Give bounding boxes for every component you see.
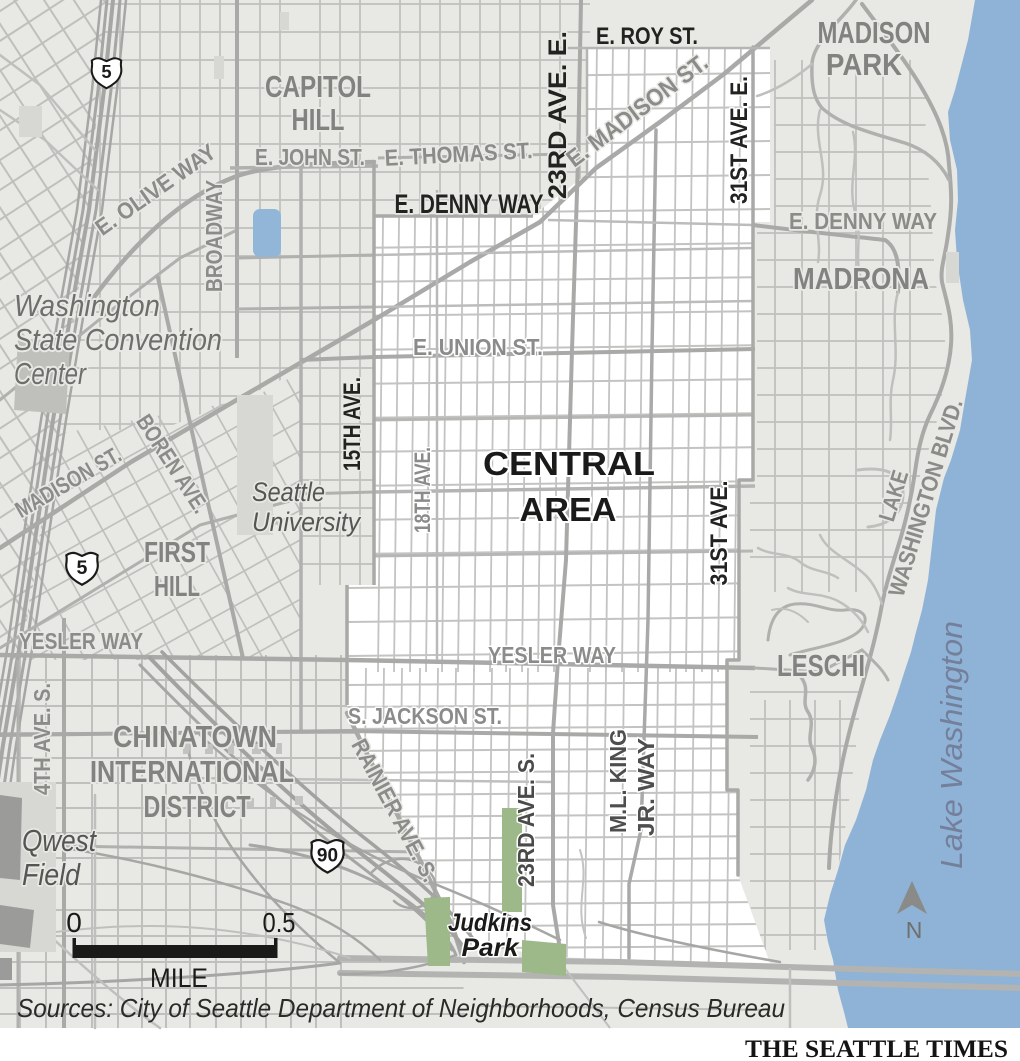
- svg-text:HILL: HILL: [154, 571, 200, 603]
- svg-text:FIRST: FIRST: [144, 537, 210, 569]
- svg-text:0.5: 0.5: [263, 907, 296, 938]
- svg-text:LESCHI: LESCHI: [777, 648, 865, 683]
- svg-text:Center: Center: [14, 356, 87, 391]
- svg-text:E. ROY ST.: E. ROY ST.: [596, 23, 698, 50]
- svg-text:MADISON: MADISON: [818, 15, 931, 50]
- svg-text:E. DENNY WAY: E. DENNY WAY: [395, 189, 544, 219]
- svg-text:THE SEATTLE TIMES: THE SEATTLE TIMES: [745, 1036, 1008, 1061]
- svg-text:15TH AVE.: 15TH AVE.: [339, 377, 366, 471]
- svg-text:BROADWAY: BROADWAY: [201, 180, 227, 292]
- svg-text:CAPITOL: CAPITOL: [265, 69, 371, 104]
- svg-text:E. DENNY WAY: E. DENNY WAY: [789, 208, 937, 234]
- svg-text:0: 0: [66, 907, 82, 938]
- svg-text:Seattle: Seattle: [252, 477, 325, 507]
- svg-text:JR. WAY: JR. WAY: [633, 738, 659, 836]
- svg-text:Judkins: Judkins: [448, 909, 532, 937]
- svg-text:YESLER WAY: YESLER WAY: [19, 628, 143, 654]
- svg-text:M.L. KING: M.L. KING: [605, 729, 631, 833]
- svg-text:23RD AVE. S.: 23RD AVE. S.: [513, 753, 539, 887]
- svg-text:CENTRAL: CENTRAL: [483, 445, 655, 482]
- svg-text:23RD AVE. E.: 23RD AVE. E.: [544, 31, 572, 199]
- svg-text:Lake Washington: Lake Washington: [934, 621, 969, 869]
- svg-text:E. JOHN ST.: E. JOHN ST.: [255, 144, 365, 170]
- svg-text:N: N: [906, 917, 923, 943]
- svg-text:HILL: HILL: [292, 102, 345, 137]
- svg-text:Sources: City of Seattle Depar: Sources: City of Seattle Department of N…: [17, 993, 785, 1023]
- svg-text:4TH AVE. S.: 4TH AVE. S.: [29, 683, 55, 795]
- svg-text:5: 5: [77, 557, 88, 579]
- svg-text:18TH AVE.: 18TH AVE.: [410, 447, 435, 533]
- svg-text:State Convention: State Convention: [14, 322, 222, 357]
- svg-text:YESLER WAY: YESLER WAY: [488, 642, 616, 668]
- svg-text:PARK: PARK: [826, 47, 903, 82]
- svg-text:Field: Field: [22, 857, 82, 892]
- svg-text:Washington: Washington: [14, 288, 160, 323]
- svg-text:5: 5: [101, 61, 111, 82]
- svg-text:MADRONA: MADRONA: [793, 261, 929, 296]
- svg-text:31ST AVE. E.: 31ST AVE. E.: [726, 76, 753, 204]
- svg-text:INTERNATIONAL: INTERNATIONAL: [90, 754, 294, 789]
- svg-text:CHINATOWN: CHINATOWN: [113, 719, 277, 754]
- svg-text:90: 90: [317, 846, 338, 867]
- svg-text:MILE: MILE: [150, 963, 208, 993]
- svg-text:S. JACKSON ST.: S. JACKSON ST.: [348, 703, 502, 729]
- svg-text:Qwest: Qwest: [22, 823, 97, 858]
- svg-text:AREA: AREA: [520, 491, 617, 528]
- svg-text:University: University: [252, 507, 361, 537]
- svg-text:E. UNION ST.: E. UNION ST.: [413, 334, 543, 360]
- svg-text:Park: Park: [462, 934, 520, 962]
- svg-text:31ST AVE.: 31ST AVE.: [706, 481, 733, 586]
- svg-text:DISTRICT: DISTRICT: [144, 789, 251, 824]
